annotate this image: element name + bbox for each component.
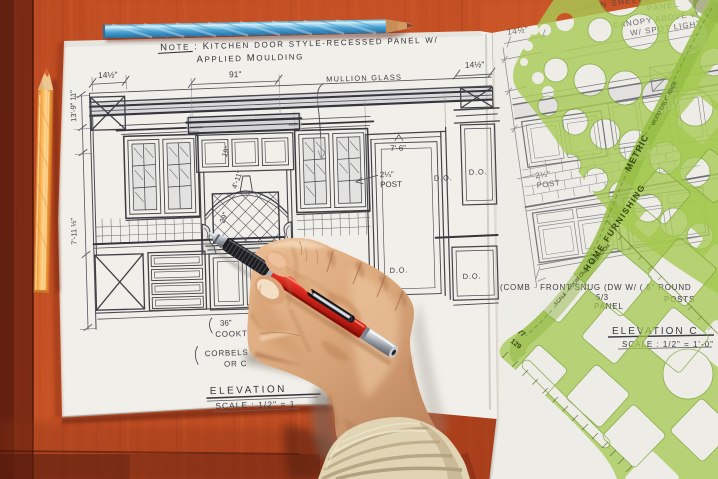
svg-text:POST: POST xyxy=(380,180,402,190)
svg-text:36": 36" xyxy=(220,318,232,327)
svg-text:D.O.: D.O. xyxy=(463,271,482,281)
svg-text:D.O.: D.O. xyxy=(469,167,488,177)
svg-text:2¼": 2¼" xyxy=(380,170,394,179)
svg-text:7'-6": 7'-6" xyxy=(390,143,406,152)
svg-text:91": 91" xyxy=(229,69,242,79)
svg-text:7'-11 ½": 7'-11 ½" xyxy=(69,217,79,244)
svg-text:13'-9" 11": 13'-9" 11" xyxy=(68,90,78,122)
svg-text:D.O.: D.O. xyxy=(389,265,408,275)
svg-text:14½": 14½" xyxy=(98,70,118,81)
svg-text:D.O.: D.O. xyxy=(434,173,453,183)
svg-text:14½": 14½" xyxy=(465,59,485,70)
svg-text:OR C: OR C xyxy=(224,359,247,369)
